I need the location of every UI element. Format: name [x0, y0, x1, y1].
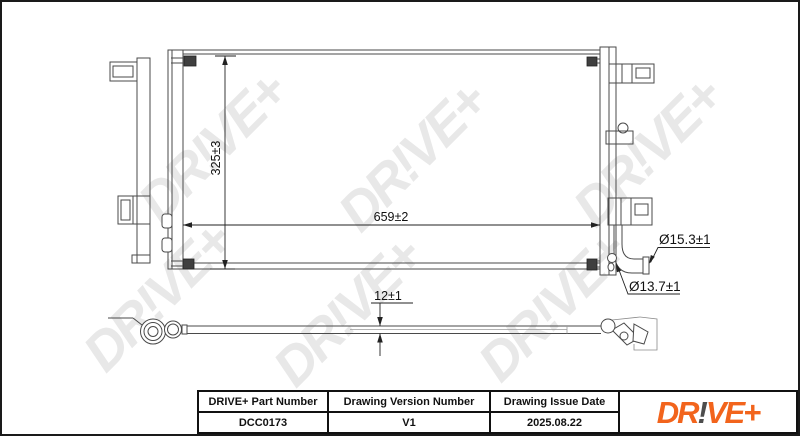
- callout-pipe-small-label: Ø13.7±1: [629, 279, 681, 294]
- watermark: DR!VE+: [327, 70, 500, 243]
- date-value: 2025.08.22: [491, 413, 620, 432]
- dim-thickness-label: 12±1: [374, 289, 402, 303]
- side-view-right-bracket: [601, 317, 657, 350]
- logo-pre: DR: [657, 395, 698, 430]
- part-number-header: DRIVE+ Part Number: [199, 392, 329, 413]
- left-mounting-rail: [137, 58, 150, 263]
- version-header: Drawing Version Number: [329, 392, 491, 413]
- logo-bang: !: [697, 395, 705, 430]
- watermark: DR!VE+: [262, 225, 435, 398]
- part-number-value: DCC0173: [199, 413, 329, 432]
- callout-pipe-large-label: Ø15.3±1: [659, 232, 711, 247]
- date-header: Drawing Issue Date: [491, 392, 620, 413]
- condenser-drawing: DR!VE+ DR!VE+ DR!VE+ DR!VE+ DR!VE+ DR!VE…: [0, 0, 800, 436]
- dim-height-label: 325±3: [209, 141, 223, 176]
- service-port: [608, 254, 617, 263]
- watermark-layer: DR!VE+ DR!VE+ DR!VE+ DR!VE+ DR!VE+ DR!VE…: [72, 60, 735, 398]
- callout-pipe-large: Ø15.3±1: [649, 232, 711, 264]
- fitting-bottom-right: [587, 259, 597, 270]
- fitting-top-left: [184, 56, 196, 66]
- fitting-top-right: [587, 57, 597, 66]
- dim-width-label: 659±2: [374, 210, 409, 224]
- brand-logo-cell: DR!VE+: [620, 392, 796, 432]
- drawing-sheet: DR!VE+ DR!VE+ DR!VE+ DR!VE+ DR!VE+ DR!VE…: [0, 0, 800, 436]
- fitting-bottom-left: [183, 259, 194, 269]
- logo-post: VE+: [706, 395, 759, 430]
- title-block: DRIVE+ Part Number Drawing Version Numbe…: [197, 390, 798, 434]
- watermark: DR!VE+: [72, 210, 245, 383]
- dimension-width: 659±2: [183, 210, 600, 228]
- drive-plus-logo: DR!VE+: [657, 397, 760, 428]
- version-value: V1: [329, 413, 491, 432]
